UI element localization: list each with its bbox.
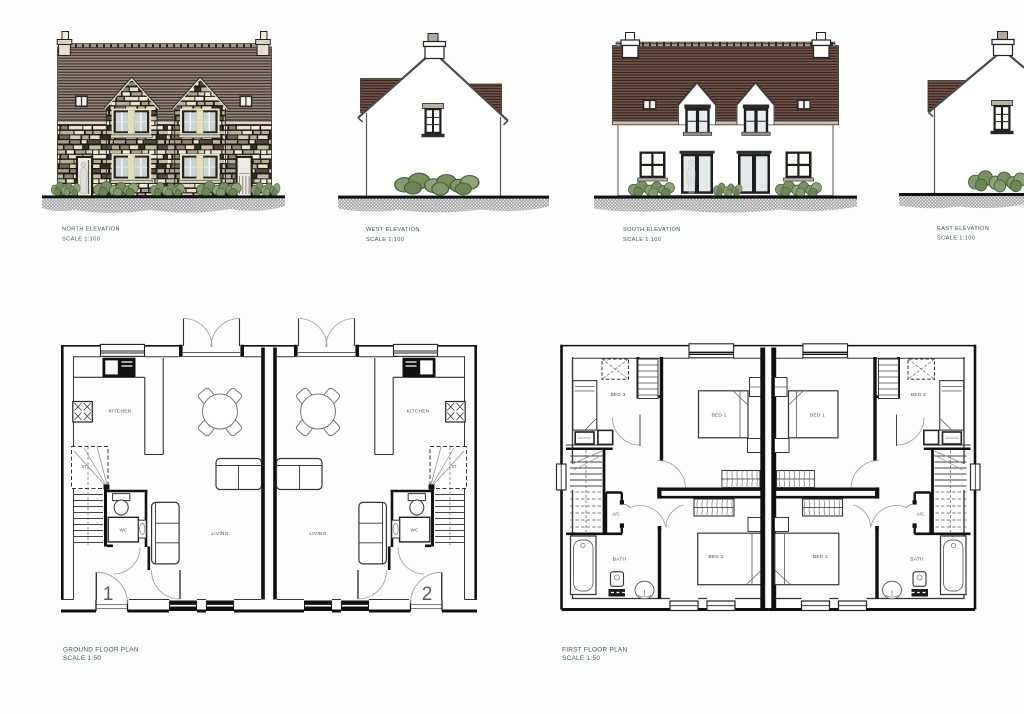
svg-text:BATH: BATH bbox=[613, 557, 627, 563]
svg-text:WC: WC bbox=[119, 528, 128, 533]
svg-text:SCALE 1:100: SCALE 1:100 bbox=[62, 237, 100, 243]
svg-text:SCALE 1:100: SCALE 1:100 bbox=[366, 237, 404, 243]
svg-text:NORTH ELEVATION: NORTH ELEVATION bbox=[62, 227, 120, 233]
svg-text:FIRST FLOOR PLAN: FIRST FLOOR PLAN bbox=[562, 647, 627, 654]
svg-text:BED 3: BED 3 bbox=[911, 392, 926, 398]
svg-text:KITCHEN: KITCHEN bbox=[407, 409, 430, 415]
svg-text:SCALE 1:50: SCALE 1:50 bbox=[63, 655, 101, 662]
svg-text:BED 1: BED 1 bbox=[810, 413, 825, 419]
svg-text:BED 3: BED 3 bbox=[610, 392, 625, 398]
svg-text:WEST ELEVATION: WEST ELEVATION bbox=[366, 227, 420, 233]
svg-text:SCALE 1:50: SCALE 1:50 bbox=[562, 655, 600, 662]
svg-text:LIVING: LIVING bbox=[211, 531, 228, 537]
svg-text:SCALE 1:100: SCALE 1:100 bbox=[937, 236, 975, 242]
svg-text:A/C: A/C bbox=[612, 512, 619, 517]
svg-text:SOUTH ELEVATION: SOUTH ELEVATION bbox=[623, 227, 681, 233]
svg-text:ST: ST bbox=[81, 464, 87, 469]
svg-text:LIVING: LIVING bbox=[309, 531, 326, 537]
svg-text:WC: WC bbox=[410, 528, 419, 533]
svg-text:2: 2 bbox=[422, 584, 433, 605]
svg-text:BED 1: BED 1 bbox=[711, 413, 726, 419]
svg-text:BED 2: BED 2 bbox=[813, 554, 828, 560]
svg-text:ST: ST bbox=[451, 464, 457, 469]
svg-text:1: 1 bbox=[103, 584, 114, 605]
svg-text:GROUND FLOOR PLAN: GROUND FLOOR PLAN bbox=[63, 647, 139, 654]
svg-text:KITCHEN: KITCHEN bbox=[109, 409, 132, 415]
svg-text:A/C: A/C bbox=[917, 512, 924, 517]
svg-text:BED 2: BED 2 bbox=[708, 554, 723, 560]
svg-text:SCALE 1:100: SCALE 1:100 bbox=[623, 237, 661, 243]
svg-text:EAST ELEVATION: EAST ELEVATION bbox=[937, 226, 989, 232]
svg-text:BATH: BATH bbox=[910, 557, 924, 563]
